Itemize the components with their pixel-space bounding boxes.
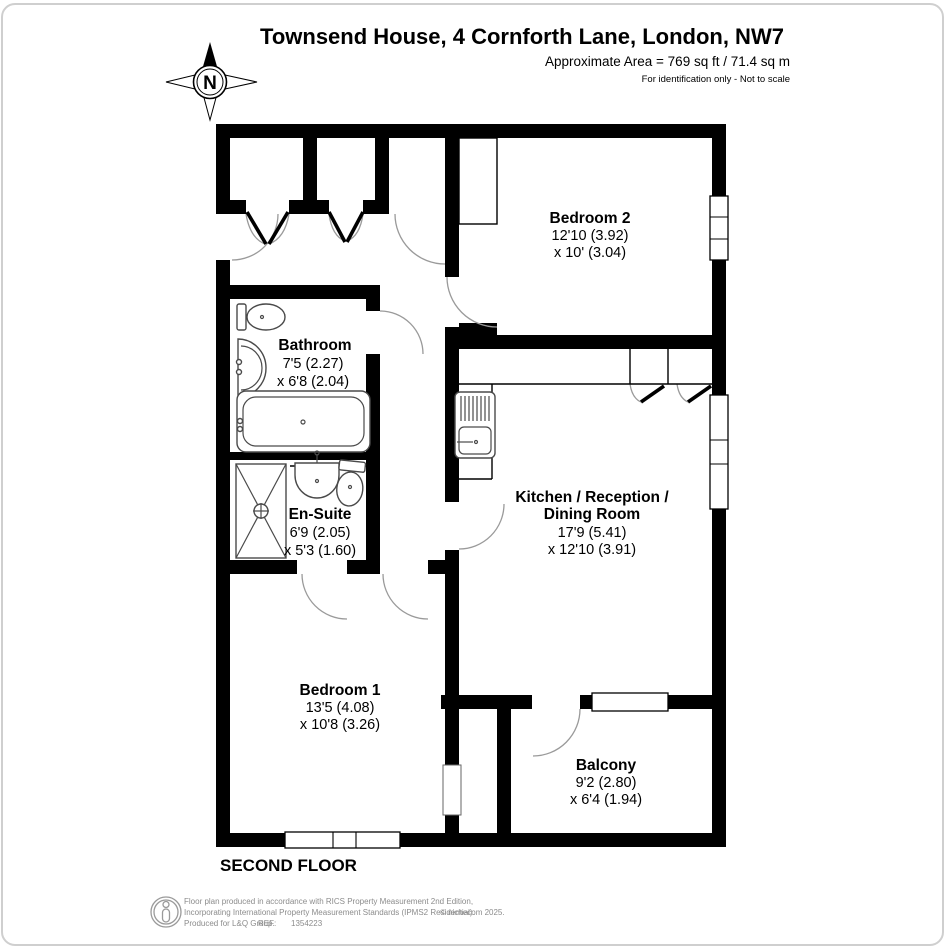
nichecom-logo-icon	[151, 897, 181, 927]
balcony-label: Balcony 9'2 (2.80) x 6'4 (1.94)	[570, 757, 642, 808]
walls	[216, 124, 726, 847]
bathtub-icon	[237, 391, 370, 452]
bedroom1-door-arc	[383, 574, 428, 619]
ensuite-dim1: 6'9 (2.05)	[290, 525, 351, 541]
kitchen-window	[710, 395, 728, 509]
compass-west-point	[166, 75, 195, 89]
kitchen-fixtures	[455, 392, 495, 458]
balcony-window	[592, 693, 668, 711]
kitchen-dim1: 17'9 (5.41)	[558, 525, 627, 541]
identification-note: For identification only - Not to scale	[642, 74, 790, 85]
bathroom-label: Bathroom 7'5 (2.27) x 6'8 (2.04)	[277, 337, 352, 390]
ensuite-dim2: x 5'3 (1.60)	[284, 543, 356, 559]
kitchen-dim2: x 12'10 (3.91)	[548, 542, 636, 558]
balcony-door-opening	[532, 693, 580, 711]
ensuite-name: En-Suite	[289, 506, 352, 523]
kitchen-sink-icon	[455, 392, 495, 458]
bathroom-dim1: 7'5 (2.27)	[283, 356, 344, 372]
ensuite-toilet-icon	[335, 460, 366, 507]
bedroom2-name: Bedroom 2	[550, 210, 631, 227]
basin-icon	[237, 339, 267, 397]
header: Townsend House, 4 Cornforth Lane, London…	[260, 24, 790, 85]
balcony-name: Balcony	[576, 757, 637, 774]
balcony-door-arc	[533, 709, 580, 756]
bedroom1-window	[285, 832, 400, 848]
bathroom-name: Bathroom	[278, 337, 351, 354]
ensuite-fixtures	[236, 451, 366, 558]
ensuite-label: En-Suite 6'9 (2.05) x 5'3 (1.60)	[284, 506, 356, 559]
kitchen-label: Kitchen / Reception / Dining Room 17'9 (…	[515, 489, 669, 558]
bedroom1-dim2: x 10'8 (3.26)	[300, 717, 380, 733]
footer-line2: Incorporating International Property Mea…	[184, 908, 475, 917]
bathroom-dim2: x 6'8 (2.04)	[277, 374, 349, 390]
footer-line1: Floor plan produced in accordance with R…	[184, 897, 473, 906]
footer-copyright: © nichecom 2025.	[440, 908, 505, 917]
bedroom2-window	[710, 196, 728, 260]
bedroom1-name: Bedroom 1	[300, 682, 381, 699]
entry-door-opening	[214, 214, 232, 260]
kitchen-door-arc	[459, 504, 504, 549]
page-title: Townsend House, 4 Cornforth Lane, London…	[260, 24, 784, 49]
bedroom2-label: Bedroom 2 12'10 (3.92) x 10' (3.04)	[550, 210, 631, 261]
balcony-dim2: x 6'4 (1.94)	[570, 792, 642, 808]
bedroom2-door-arc	[447, 277, 497, 327]
footer: Floor plan produced in accordance with R…	[151, 897, 505, 928]
shower-icon	[236, 464, 286, 558]
bedroom2-dim2: x 10' (3.04)	[554, 245, 626, 261]
toilet-icon	[237, 304, 285, 330]
bedroom1-east-window	[443, 765, 461, 815]
compass-east-point	[225, 75, 257, 89]
bathroom-door-arc	[380, 311, 423, 354]
closet2-bifold-door	[329, 212, 363, 242]
footer-ref-value: 1354223	[291, 919, 323, 928]
footer-ref-label: REF:	[258, 919, 276, 928]
bedroom2-dim1: 12'10 (3.92)	[552, 228, 629, 244]
closet1-bifold-door	[246, 212, 289, 244]
bedroom1-dim1: 13'5 (4.08)	[306, 700, 375, 716]
compass-north-label: N	[203, 73, 217, 94]
room-labels: Bedroom 2 12'10 (3.92) x 10' (3.04) Bath…	[277, 210, 669, 808]
approximate-area-label: Approximate Area = 769 sq ft / 71.4 sq m	[545, 54, 790, 69]
kitchen-name-line1: Kitchen / Reception /	[515, 489, 669, 506]
floor-label: SECOND FLOOR	[220, 856, 357, 875]
bedroom2-wardrobe	[459, 138, 497, 224]
balcony-dim1: 9'2 (2.80)	[576, 775, 637, 791]
kitchen-cupboard-doors	[630, 384, 711, 402]
floorplan-page: Townsend House, 4 Cornforth Lane, London…	[1, 3, 944, 946]
closet3-door-arc	[395, 214, 445, 264]
kitchen-name-line2: Dining Room	[544, 506, 640, 523]
compass-rose-icon: N	[166, 42, 257, 120]
ensuite-door-arc	[302, 574, 347, 619]
bedroom1-label: Bedroom 1 13'5 (4.08) x 10'8 (3.26)	[300, 682, 381, 733]
